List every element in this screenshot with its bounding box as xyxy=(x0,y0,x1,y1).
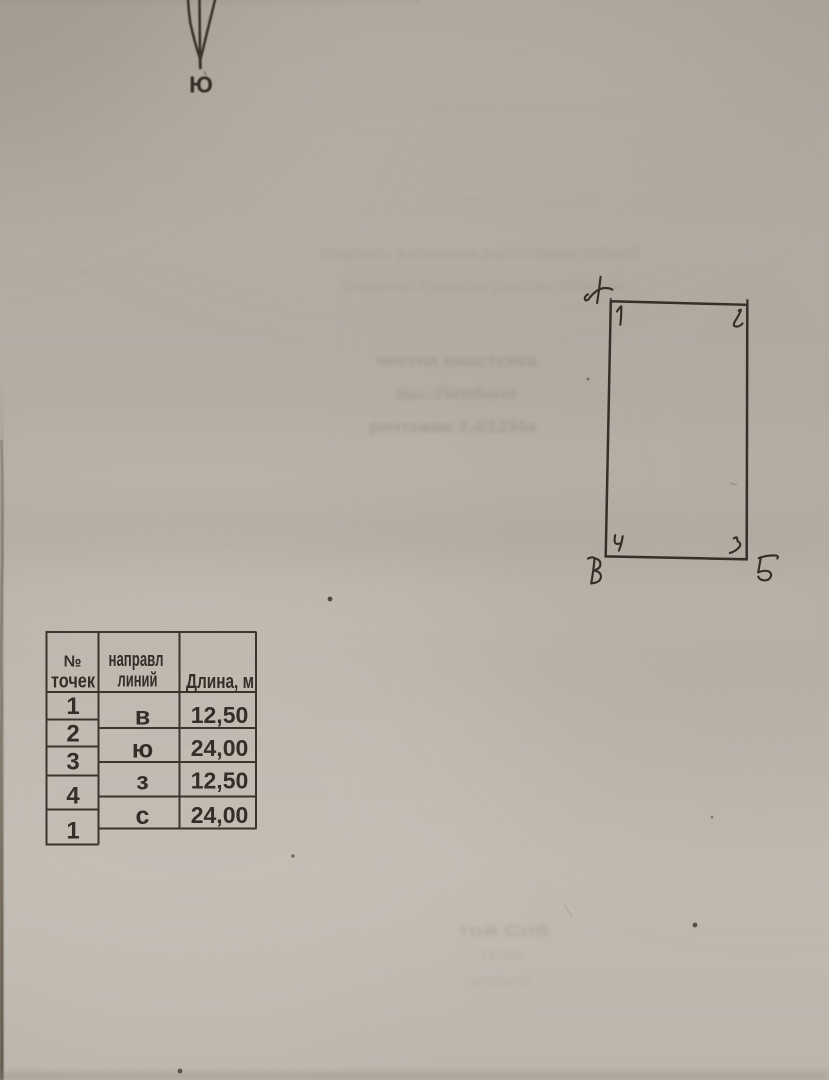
svg-text:Ю: Ю xyxy=(189,72,213,98)
svg-text:Длина, м: Длина, м xyxy=(186,671,254,693)
svg-text:з: з xyxy=(136,768,148,796)
svg-text:подпись величина расстояние об: подпись величина расстояние общий xyxy=(320,245,640,262)
svg-text:точек: точек xyxy=(51,671,96,693)
svg-text:сведения границы участка площа: сведения границы участка площадь xyxy=(341,278,627,295)
svg-text:пло: пло xyxy=(481,946,523,962)
svg-text:1: 1 xyxy=(66,818,79,845)
svg-text:24,00: 24,00 xyxy=(191,802,249,828)
svg-text:вы.:Ливбаня: вы.:Ливбаня xyxy=(396,384,517,403)
svg-text:в: в xyxy=(135,703,150,731)
svg-text:ричтовам 3,4/1234а: ричтовам 3,4/1234а xyxy=(369,417,537,436)
svg-text:1: 1 xyxy=(66,693,79,720)
svg-text:сведения о месте: сведения о месте xyxy=(420,192,600,209)
svg-text:с: с xyxy=(136,802,150,830)
svg-text:2: 2 xyxy=(66,721,79,748)
svg-text:4: 4 xyxy=(66,783,80,810)
svg-text:данные записи граница верх: данные записи граница верх xyxy=(430,99,671,116)
svg-text:направл: направл xyxy=(109,649,164,671)
svg-text:12,50: 12,50 xyxy=(191,702,249,728)
svg-text:честна виастсяка: честна виастсяка xyxy=(376,351,538,370)
svg-text:ю: ю xyxy=(132,736,153,764)
svg-text:24,00: 24,00 xyxy=(191,735,249,761)
svg-text:линий: линий xyxy=(118,670,158,692)
svg-text:той Спб: той Спб xyxy=(458,923,549,940)
svg-text:итого: итого xyxy=(470,973,530,989)
svg-text:3: 3 xyxy=(66,749,79,776)
svg-text:12,50: 12,50 xyxy=(191,768,249,794)
svg-text:№: № xyxy=(64,654,82,671)
